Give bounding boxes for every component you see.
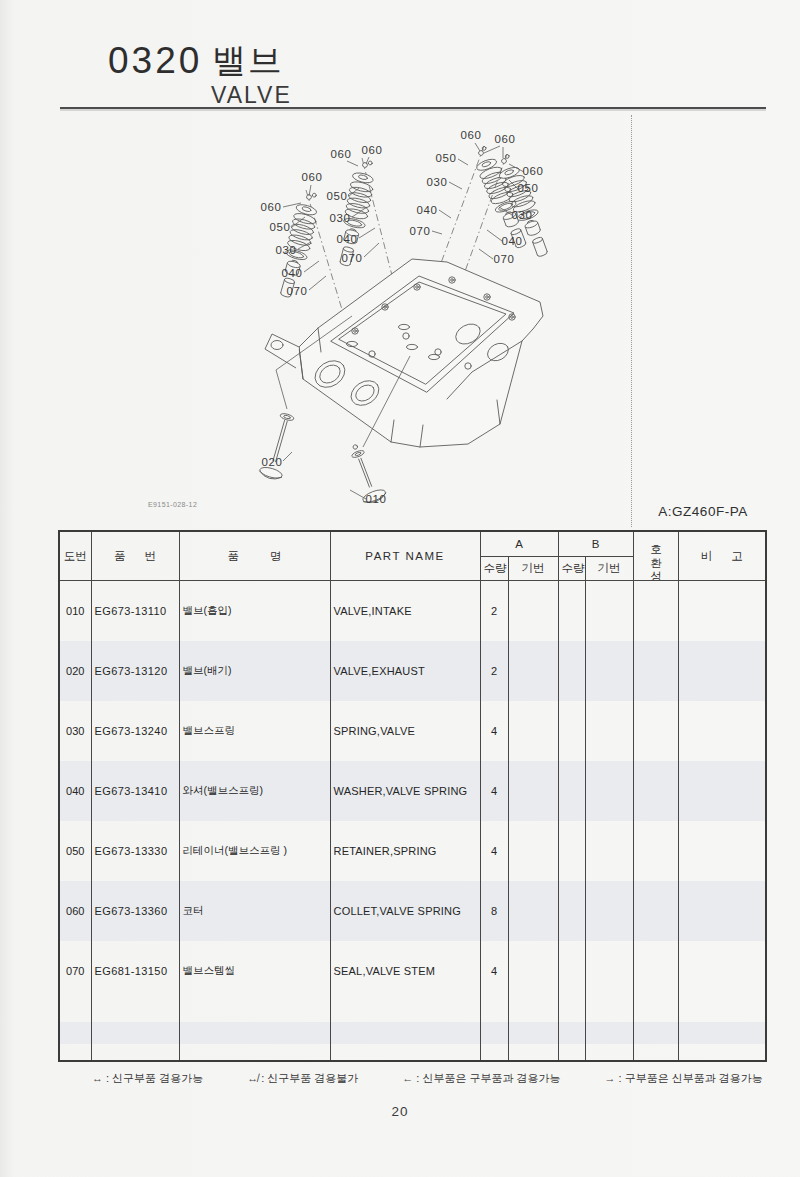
callout-label-040: 040	[337, 233, 358, 245]
cell-part_name: WASHER,VALVE SPRING	[330, 761, 480, 821]
header-compatibility: 호환성	[633, 531, 678, 581]
callout-label-060: 060	[495, 133, 516, 145]
callout-leader	[449, 182, 462, 189]
callout-label-060: 060	[261, 201, 282, 213]
parts-table: 도번 품 번 품 명 PART NAME A B 호환성 비 고 수량 기번 수…	[58, 530, 767, 1062]
cell-qty_a: 4	[480, 941, 508, 1001]
crossed-arrow-icon: ↮	[247, 1072, 258, 1084]
cell-ser_a	[508, 821, 558, 881]
cell-part_no: EG673-13360	[91, 881, 179, 941]
header-part-no: 품 번	[91, 531, 179, 581]
cell-part_name: VALVE,INTAKE	[330, 581, 480, 641]
exhaust-valve-020	[258, 411, 299, 482]
cell-part_no: EG673-13330	[91, 821, 179, 881]
legend-item: ↮: 신구부품 겸용불가	[247, 1071, 358, 1086]
cell-part_name: COLLET,VALVE SPRING	[330, 881, 480, 941]
header-part-name: PART NAME	[330, 531, 480, 581]
callout-leader	[347, 161, 358, 166]
cell-ser_a	[508, 881, 558, 941]
header-ref-no: 도번	[59, 531, 91, 581]
parts-table-body: 010EG673-13110밸브(흡입)VALVE,INTAKE2020EG67…	[59, 581, 766, 1001]
legend-item: →: 구부품은 신부품과 겸용가능	[605, 1071, 763, 1086]
callout-leader	[304, 261, 319, 272]
callout-leader	[475, 143, 480, 151]
callout-label-040: 040	[282, 267, 303, 279]
cell-no: 010	[59, 581, 91, 641]
cell-remarks	[678, 701, 766, 761]
cell-ser_b	[585, 581, 633, 641]
cell-remarks	[678, 581, 766, 641]
cell-name_ko: 밸브스템씰	[179, 941, 330, 1001]
callout-label-030: 030	[330, 212, 351, 224]
callout-leader	[487, 230, 502, 241]
callout-label-070: 070	[494, 253, 515, 265]
callout-label-060: 060	[362, 144, 383, 156]
cell-no: 030	[59, 701, 91, 761]
cell-qty_a: 4	[480, 821, 508, 881]
table-row: 030EG673-13240밸브스프링SPRING,VALVE4	[59, 701, 766, 761]
cell-qty_b	[558, 581, 585, 641]
cell-part_no: EG673-13120	[91, 641, 179, 701]
callout-leader	[364, 243, 379, 257]
callout-label-030: 030	[427, 176, 448, 188]
cell-compat	[633, 701, 678, 761]
callout-label-070: 070	[410, 225, 431, 237]
table-row: 040EG673-13410와셔(밸브스프링)WASHER,VALVE SPRI…	[59, 761, 766, 821]
cell-ser_b	[585, 761, 633, 821]
cell-no: 050	[59, 821, 91, 881]
cell-remarks	[678, 821, 766, 881]
cell-part_name: RETAINER,SPRING	[330, 821, 480, 881]
cell-qty_b	[558, 941, 585, 1001]
cell-compat	[633, 641, 678, 701]
cell-no: 020	[59, 641, 91, 701]
cell-part_no: EG673-13410	[91, 761, 179, 821]
header-remarks: 비 고	[678, 531, 766, 581]
cell-part_no: EG673-13110	[91, 581, 179, 641]
cell-ser_b	[585, 821, 633, 881]
cell-ser_b	[585, 641, 633, 701]
cell-remarks	[678, 761, 766, 821]
both-arrow-icon: ↔	[92, 1072, 103, 1084]
cell-name_ko: 와셔(밸브스프링)	[179, 761, 330, 821]
table-row: 060EG673-13360코터COLLET,VALVE SPRING8	[59, 881, 766, 941]
table-row: 010EG673-13110밸브(흡입)VALVE,INTAKE2	[59, 581, 766, 641]
cell-ser_a	[508, 641, 558, 701]
cell-qty_b	[558, 821, 585, 881]
header-group-b: B	[558, 531, 633, 557]
left-arrow-icon: ←	[402, 1072, 413, 1084]
callout-label-060: 060	[461, 129, 482, 141]
callout-label-020: 020	[262, 456, 283, 468]
cell-part_name: VALVE,EXHAUST	[330, 641, 480, 701]
cell-name_ko: 코터	[179, 881, 330, 941]
cell-qty_b	[558, 761, 585, 821]
table-row: 050EG673-13330리테이너(밸브스프링 )RETAINER,SPRIN…	[59, 821, 766, 881]
cell-remarks	[678, 641, 766, 701]
cell-ser_b	[585, 881, 633, 941]
catalog-page: 0320 밸브 VALVE	[0, 0, 800, 1177]
cell-part_no: EG681-13150	[91, 941, 179, 1001]
callout-leader	[350, 490, 366, 499]
cell-compat	[633, 581, 678, 641]
cell-name_ko: 리테이너(밸브스프링 )	[179, 821, 330, 881]
cell-compat	[633, 941, 678, 1001]
drawing-number: E9151-028-12	[148, 501, 197, 508]
callout-leader	[479, 249, 493, 259]
header-serial-a: 기번	[508, 557, 558, 581]
cell-ser_a	[508, 701, 558, 761]
callout-label-060: 060	[302, 171, 323, 183]
callout-leader	[458, 159, 468, 165]
callout-label-070: 070	[342, 252, 363, 264]
cell-name_ko: 밸브(배기)	[179, 641, 330, 701]
cell-qty_a: 2	[480, 641, 508, 701]
cell-qty_b	[558, 881, 585, 941]
cell-name_ko: 밸브스프링	[179, 701, 330, 761]
cell-ser_b	[585, 701, 633, 761]
header-name-korean: 품 명	[179, 531, 330, 581]
header-qty-a: 수량	[480, 557, 508, 581]
cell-part_name: SEAL,VALVE STEM	[330, 941, 480, 1001]
page-number: 20	[0, 1104, 800, 1119]
cell-compat	[633, 821, 678, 881]
callout-label-060: 060	[523, 165, 544, 177]
empty-striped-area	[59, 1001, 766, 1061]
table-row: 020EG673-13120밸브(배기)VALVE,EXHAUST2	[59, 641, 766, 701]
header-qty-b: 수량	[558, 557, 585, 581]
cell-remarks	[678, 881, 766, 941]
cell-no: 070	[59, 941, 91, 1001]
callout-label-070: 070	[287, 285, 308, 297]
cell-ser_a	[508, 941, 558, 1001]
callout-label-050: 050	[270, 221, 291, 233]
callout-label-010: 010	[366, 493, 387, 505]
cell-part_name: SPRING,VALVE	[330, 701, 480, 761]
interchangeability-legend: ↔: 신구부품 겸용가능 ↮: 신구부품 겸용불가 ←: 신부품은 구부품과 겸…	[92, 1071, 772, 1086]
exploded-view-diagram: 0600600500300400700600600500300400700600…	[0, 0, 800, 545]
header-group-a: A	[480, 531, 558, 557]
callout-label-050: 050	[518, 182, 539, 194]
callout-leader	[432, 231, 442, 234]
legend-item: ←: 신부품은 구부품과 겸용가능	[402, 1071, 560, 1086]
diagram-divider-line	[631, 115, 632, 527]
callout-leader	[283, 452, 292, 461]
cell-ser_b	[585, 941, 633, 1001]
callout-label-030: 030	[276, 244, 297, 256]
model-key: A:GZ460F-PA	[640, 504, 766, 519]
cell-ser_a	[508, 581, 558, 641]
callout-leader	[309, 276, 326, 290]
legend-item: ↔: 신구부품 겸용가능	[92, 1071, 203, 1086]
right-arrow-icon: →	[605, 1072, 616, 1084]
cell-qty_a: 2	[480, 581, 508, 641]
cell-name_ko: 밸브(흡입)	[179, 581, 330, 641]
callout-label-040: 040	[502, 235, 523, 247]
callout-leader	[439, 210, 451, 218]
cell-compat	[633, 761, 678, 821]
parts-table-header: 도번 품 번 품 명 PART NAME A B 호환성 비 고 수량 기번 수…	[59, 531, 766, 581]
cell-part_no: EG673-13240	[91, 701, 179, 761]
cell-qty_a: 4	[480, 701, 508, 761]
header-serial-b: 기번	[585, 557, 633, 581]
cell-no: 060	[59, 881, 91, 941]
cell-qty_a: 4	[480, 761, 508, 821]
cell-compat	[633, 881, 678, 941]
callout-label-050: 050	[436, 152, 457, 164]
table-row: 070EG681-13150밸브스템씰SEAL,VALVE STEM4	[59, 941, 766, 1001]
cell-qty_a: 8	[480, 881, 508, 941]
callout-label-030: 030	[512, 209, 533, 221]
cell-no: 040	[59, 761, 91, 821]
cell-qty_b	[558, 641, 585, 701]
callout-label-050: 050	[327, 190, 348, 202]
cell-remarks	[678, 941, 766, 1001]
callout-label-060: 060	[331, 148, 352, 160]
cell-qty_b	[558, 701, 585, 761]
cell-ser_a	[508, 761, 558, 821]
callout-label-040: 040	[417, 204, 438, 216]
callout-leader	[359, 228, 375, 238]
